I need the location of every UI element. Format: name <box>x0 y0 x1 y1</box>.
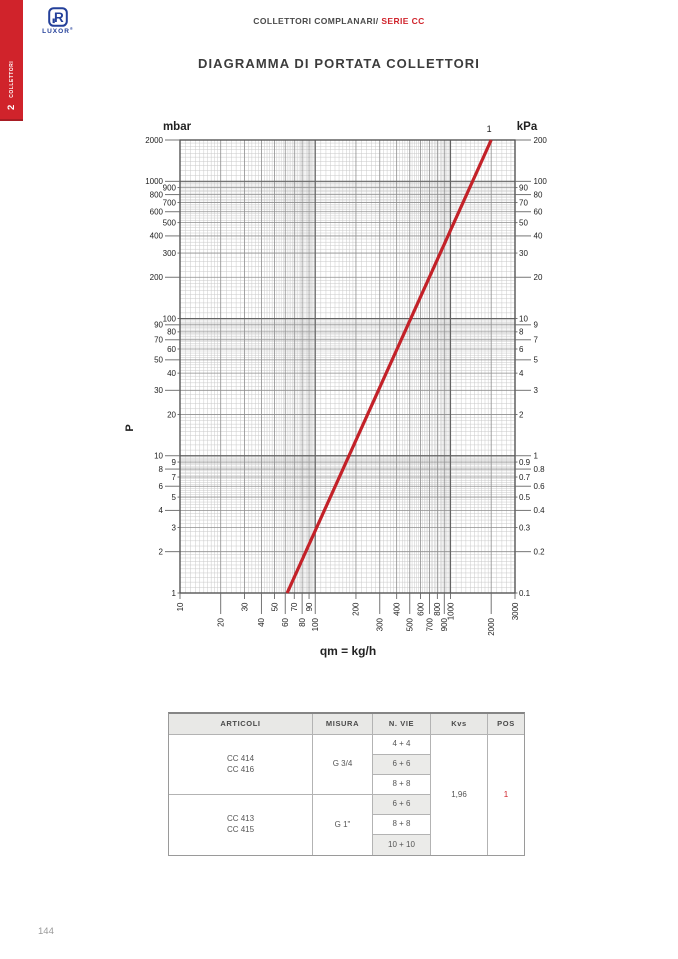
svg-text:4: 4 <box>159 506 164 515</box>
svg-text:800: 800 <box>433 602 442 616</box>
svg-text:90: 90 <box>154 321 163 330</box>
vie-cell: 8 + 8 <box>373 775 431 795</box>
svg-text:8: 8 <box>159 465 164 474</box>
vie-cell: 8 + 8 <box>373 815 431 835</box>
brand-name: LUXOR <box>42 28 70 35</box>
svg-text:4: 4 <box>519 369 524 378</box>
svg-text:200: 200 <box>534 136 548 145</box>
svg-text:60: 60 <box>281 617 290 626</box>
luxor-logo-wordmark: LUXOR® <box>40 26 76 35</box>
flow-rate-chart-canvas: 2000100090080070060050040030020010090807… <box>110 110 570 660</box>
svg-text:40: 40 <box>257 617 266 626</box>
svg-text:100: 100 <box>311 617 320 631</box>
svg-text:6: 6 <box>159 482 164 491</box>
svg-text:500: 500 <box>163 218 177 227</box>
breadcrumb: COLLETTORI COMPLANARI/ SERIE CC <box>0 16 678 26</box>
svg-text:5: 5 <box>534 356 539 365</box>
svg-text:80: 80 <box>534 190 543 199</box>
chapter-number: 2 <box>6 105 17 110</box>
table-header-n-vie: N. VIE <box>373 714 431 735</box>
breadcrumb-series: SERIE CC <box>381 16 424 26</box>
vie-cell: 6 + 6 <box>373 795 431 815</box>
svg-text:1: 1 <box>534 452 539 461</box>
pos-cell: 1 <box>488 735 524 855</box>
svg-text:0.7: 0.7 <box>519 473 531 482</box>
svg-text:qm = kg/h: qm = kg/h <box>320 644 376 658</box>
breadcrumb-section: COLLETTORI COMPLANARI/ <box>253 16 378 26</box>
svg-text:2: 2 <box>159 547 164 556</box>
svg-text:200: 200 <box>150 273 164 282</box>
svg-text:1000: 1000 <box>145 177 163 186</box>
svg-text:50: 50 <box>270 602 279 611</box>
table-header-pos: POS <box>488 714 524 735</box>
svg-text:2000: 2000 <box>145 136 163 145</box>
svg-text:6: 6 <box>519 345 524 354</box>
svg-text:0.9: 0.9 <box>519 458 531 467</box>
svg-text:60: 60 <box>167 345 176 354</box>
svg-text:600: 600 <box>416 602 425 616</box>
svg-text:100: 100 <box>534 177 548 186</box>
svg-text:500: 500 <box>406 617 415 631</box>
svg-text:40: 40 <box>167 369 176 378</box>
svg-text:1000: 1000 <box>446 602 455 620</box>
page-number: 144 <box>38 926 54 937</box>
svg-text:30: 30 <box>154 386 163 395</box>
svg-text:0.4: 0.4 <box>534 506 546 515</box>
svg-text:20: 20 <box>217 617 226 626</box>
svg-text:0.1: 0.1 <box>519 589 531 598</box>
product-table: ARTICOLIMISURAN. VIEKvsPOSCC 414CC 416G … <box>168 712 525 856</box>
svg-text:70: 70 <box>290 602 299 611</box>
svg-text:7: 7 <box>172 473 177 482</box>
svg-text:90: 90 <box>519 183 528 192</box>
svg-text:kPa: kPa <box>517 121 538 133</box>
svg-text:0.8: 0.8 <box>534 465 546 474</box>
table-header-misura: MISURA <box>313 714 373 735</box>
svg-text:5: 5 <box>172 493 177 502</box>
flow-rate-chart: 2000100090080070060050040030020010090807… <box>110 110 570 660</box>
kvs-cell: 1,96 <box>431 735 488 855</box>
svg-text:30: 30 <box>519 249 528 258</box>
svg-text:10: 10 <box>154 452 163 461</box>
svg-text:80: 80 <box>167 328 176 337</box>
vie-cell: 10 + 10 <box>373 835 431 855</box>
svg-text:70: 70 <box>519 198 528 207</box>
svg-text:200: 200 <box>352 602 361 616</box>
svg-text:0.5: 0.5 <box>519 493 531 502</box>
svg-text:P: P <box>124 424 136 431</box>
misura-cell: G 3/4 <box>313 735 373 795</box>
catalog-page: 2 COLLETTORI R LUXOR® COLLETTORI COMPLAN… <box>0 0 678 959</box>
svg-text:300: 300 <box>163 249 177 258</box>
svg-text:300: 300 <box>376 617 385 631</box>
svg-text:10: 10 <box>176 602 185 611</box>
articoli-cell: CC 413CC 415 <box>169 795 313 855</box>
svg-text:40: 40 <box>534 232 543 241</box>
svg-text:2: 2 <box>519 410 524 419</box>
svg-text:1: 1 <box>172 589 177 598</box>
svg-text:400: 400 <box>392 602 401 616</box>
svg-text:800: 800 <box>150 190 164 199</box>
svg-text:3000: 3000 <box>511 602 520 620</box>
vie-cell: 6 + 6 <box>373 755 431 775</box>
svg-text:60: 60 <box>534 208 543 217</box>
svg-text:90: 90 <box>305 602 314 611</box>
table-header-kvs: Kvs <box>431 714 488 735</box>
svg-text:0.3: 0.3 <box>519 523 531 532</box>
svg-text:700: 700 <box>163 198 177 207</box>
svg-text:600: 600 <box>150 208 164 217</box>
svg-text:80: 80 <box>298 617 307 626</box>
svg-text:1: 1 <box>487 124 492 134</box>
table-header-articoli: ARTICOLI <box>169 714 313 735</box>
misura-cell: G 1" <box>313 795 373 855</box>
svg-text:3: 3 <box>172 523 177 532</box>
svg-text:50: 50 <box>519 218 528 227</box>
vie-cell: 4 + 4 <box>373 735 431 755</box>
articoli-cell: CC 414CC 416 <box>169 735 313 795</box>
svg-text:2000: 2000 <box>487 617 496 635</box>
svg-text:3: 3 <box>534 386 539 395</box>
svg-text:0.6: 0.6 <box>534 482 546 491</box>
svg-text:0.2: 0.2 <box>534 547 546 556</box>
svg-text:400: 400 <box>150 232 164 241</box>
svg-text:mbar: mbar <box>163 121 192 133</box>
svg-text:9: 9 <box>534 321 539 330</box>
registered-mark: ® <box>70 26 74 31</box>
svg-text:900: 900 <box>163 183 177 192</box>
svg-text:20: 20 <box>167 410 176 419</box>
svg-text:30: 30 <box>240 602 249 611</box>
svg-text:10: 10 <box>519 314 528 323</box>
svg-text:700: 700 <box>425 617 434 631</box>
svg-text:70: 70 <box>154 336 163 345</box>
svg-text:50: 50 <box>154 356 163 365</box>
svg-text:9: 9 <box>172 458 177 467</box>
page-title: DIAGRAMMA DI PORTATA COLLETTORI <box>0 56 678 71</box>
svg-text:100: 100 <box>163 314 177 323</box>
svg-text:7: 7 <box>534 336 539 345</box>
svg-text:20: 20 <box>534 273 543 282</box>
svg-text:8: 8 <box>519 328 524 337</box>
